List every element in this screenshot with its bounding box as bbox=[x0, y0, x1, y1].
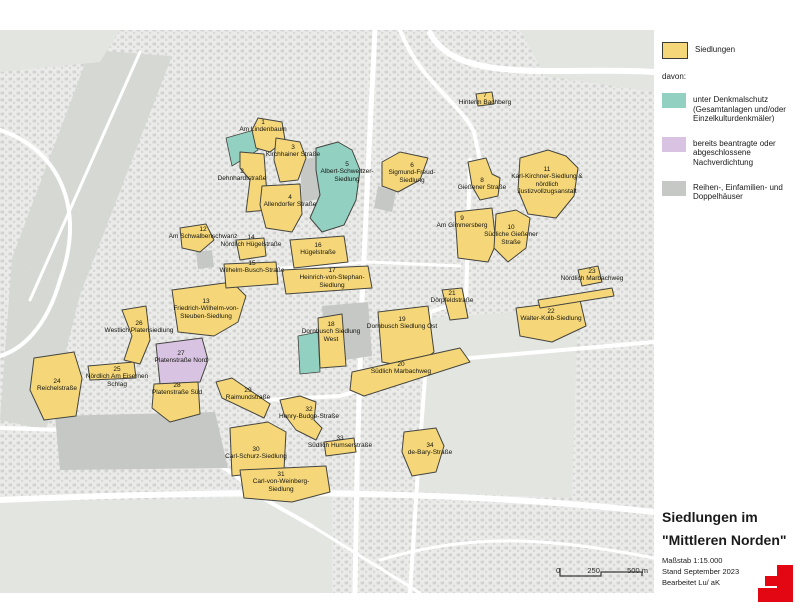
legend: Siedlungen davon: unter Denkmalschutz (G… bbox=[662, 42, 796, 215]
map-canvas: 1Am Lindenbaum2Dehnhardtstraße3Kirchhain… bbox=[0, 30, 654, 593]
scalebar-bar bbox=[556, 566, 648, 578]
settlement-polygon-4 bbox=[260, 184, 302, 232]
title-block: Siedlungen im "Mittleren Norden" Maßstab… bbox=[662, 510, 800, 589]
legend-item-denkmalschutz: unter Denkmalschutz (Gesamtanlagen und/o… bbox=[662, 93, 796, 124]
frankfurt-logo-icon bbox=[758, 565, 796, 603]
page: { "legend": { "items": [ {"key":"standar… bbox=[0, 0, 800, 600]
legend-item-nachverdichtung: bereits beantragte oder abgeschlossene N… bbox=[662, 137, 796, 168]
map-title-line1: Siedlungen im bbox=[662, 510, 800, 524]
legend-label-siedlungen: Siedlungen bbox=[695, 42, 735, 55]
settlement-polygon-16 bbox=[290, 236, 348, 268]
settlement-polygon-9 bbox=[455, 208, 496, 262]
side-panel: Siedlungen davon: unter Denkmalschutz (G… bbox=[655, 0, 800, 600]
legend-swatch-siedlungen bbox=[662, 42, 688, 59]
gray-area-1 bbox=[55, 412, 228, 470]
settlement-polygon-23 bbox=[578, 266, 602, 286]
settlement-polygon-18 bbox=[318, 314, 346, 368]
legend-label-nachverdichtung: bereits beantragte oder abgeschlossene N… bbox=[693, 137, 796, 168]
legend-swatch-nachverdichtung bbox=[662, 137, 686, 152]
legend-swatch-reihenhaeuser bbox=[662, 181, 686, 196]
patch-denkmal-1 bbox=[298, 332, 320, 374]
legend-label-denkmalschutz: unter Denkmalschutz (Gesamtanlagen und/o… bbox=[693, 93, 796, 124]
map-svg bbox=[0, 30, 654, 593]
legend-swatch-denkmalschutz bbox=[662, 93, 686, 108]
settlement-polygon-15 bbox=[224, 262, 278, 288]
legend-item-reihenhaeuser: Reihen-, Einfamilien- und Doppelhäuser bbox=[662, 181, 796, 202]
scalebar: 0 250 500 m bbox=[556, 566, 648, 576]
settlement-polygon-7 bbox=[476, 92, 494, 106]
settlement-polygon-14 bbox=[236, 238, 266, 260]
map-title-line2: "Mittleren Norden" bbox=[662, 533, 800, 547]
gray-area-5 bbox=[196, 250, 214, 269]
legend-label-reihenhaeuser: Reihen-, Einfamilien- und Doppelhäuser bbox=[693, 181, 796, 202]
settlement-polygon-27 bbox=[156, 338, 208, 384]
legend-item-siedlungen: Siedlungen bbox=[662, 42, 796, 59]
legend-davon-label: davon: bbox=[662, 72, 796, 81]
